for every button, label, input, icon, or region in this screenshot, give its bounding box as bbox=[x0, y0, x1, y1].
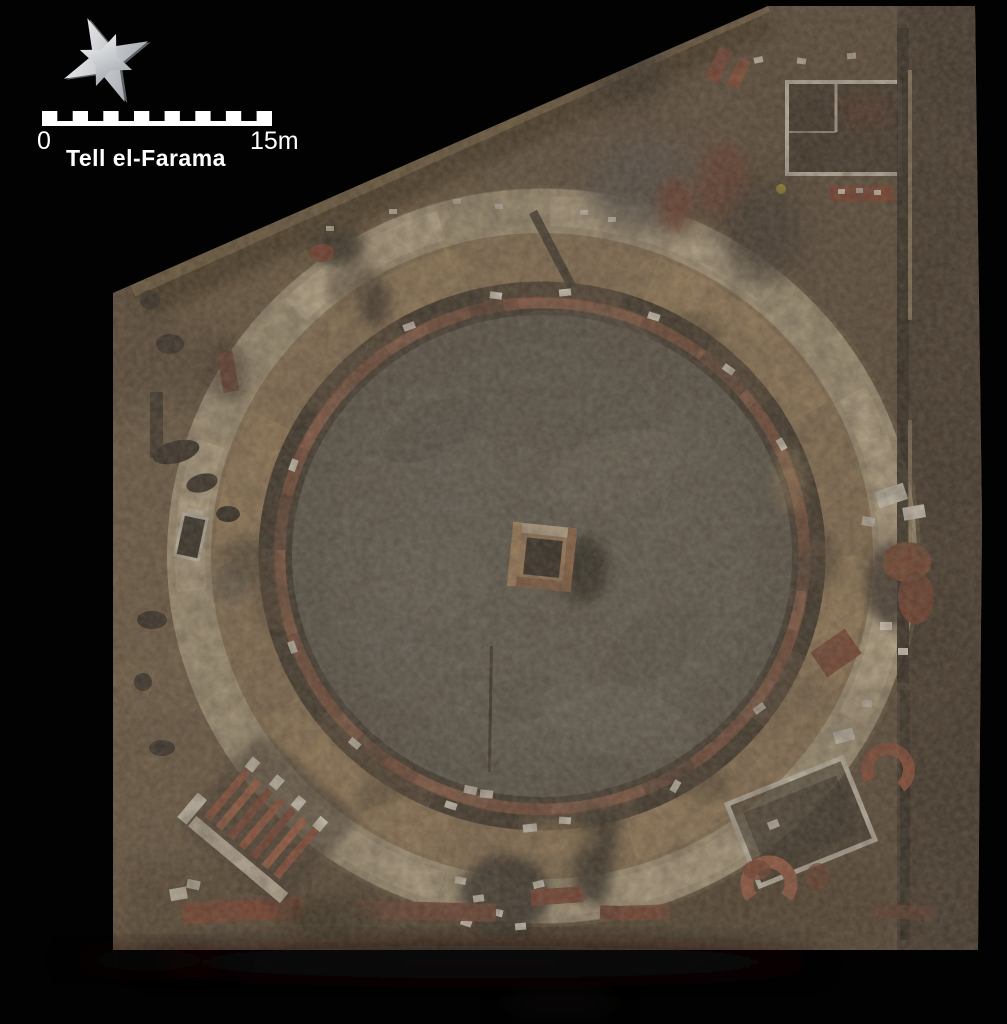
scale-bar-end-label: 15m bbox=[250, 129, 299, 154]
figure-canvas: 0 15m Tell el-Farama bbox=[0, 0, 1007, 1024]
scale-bar-start-label: 0 bbox=[37, 129, 51, 154]
site-title: Tell el-Farama bbox=[66, 147, 226, 170]
